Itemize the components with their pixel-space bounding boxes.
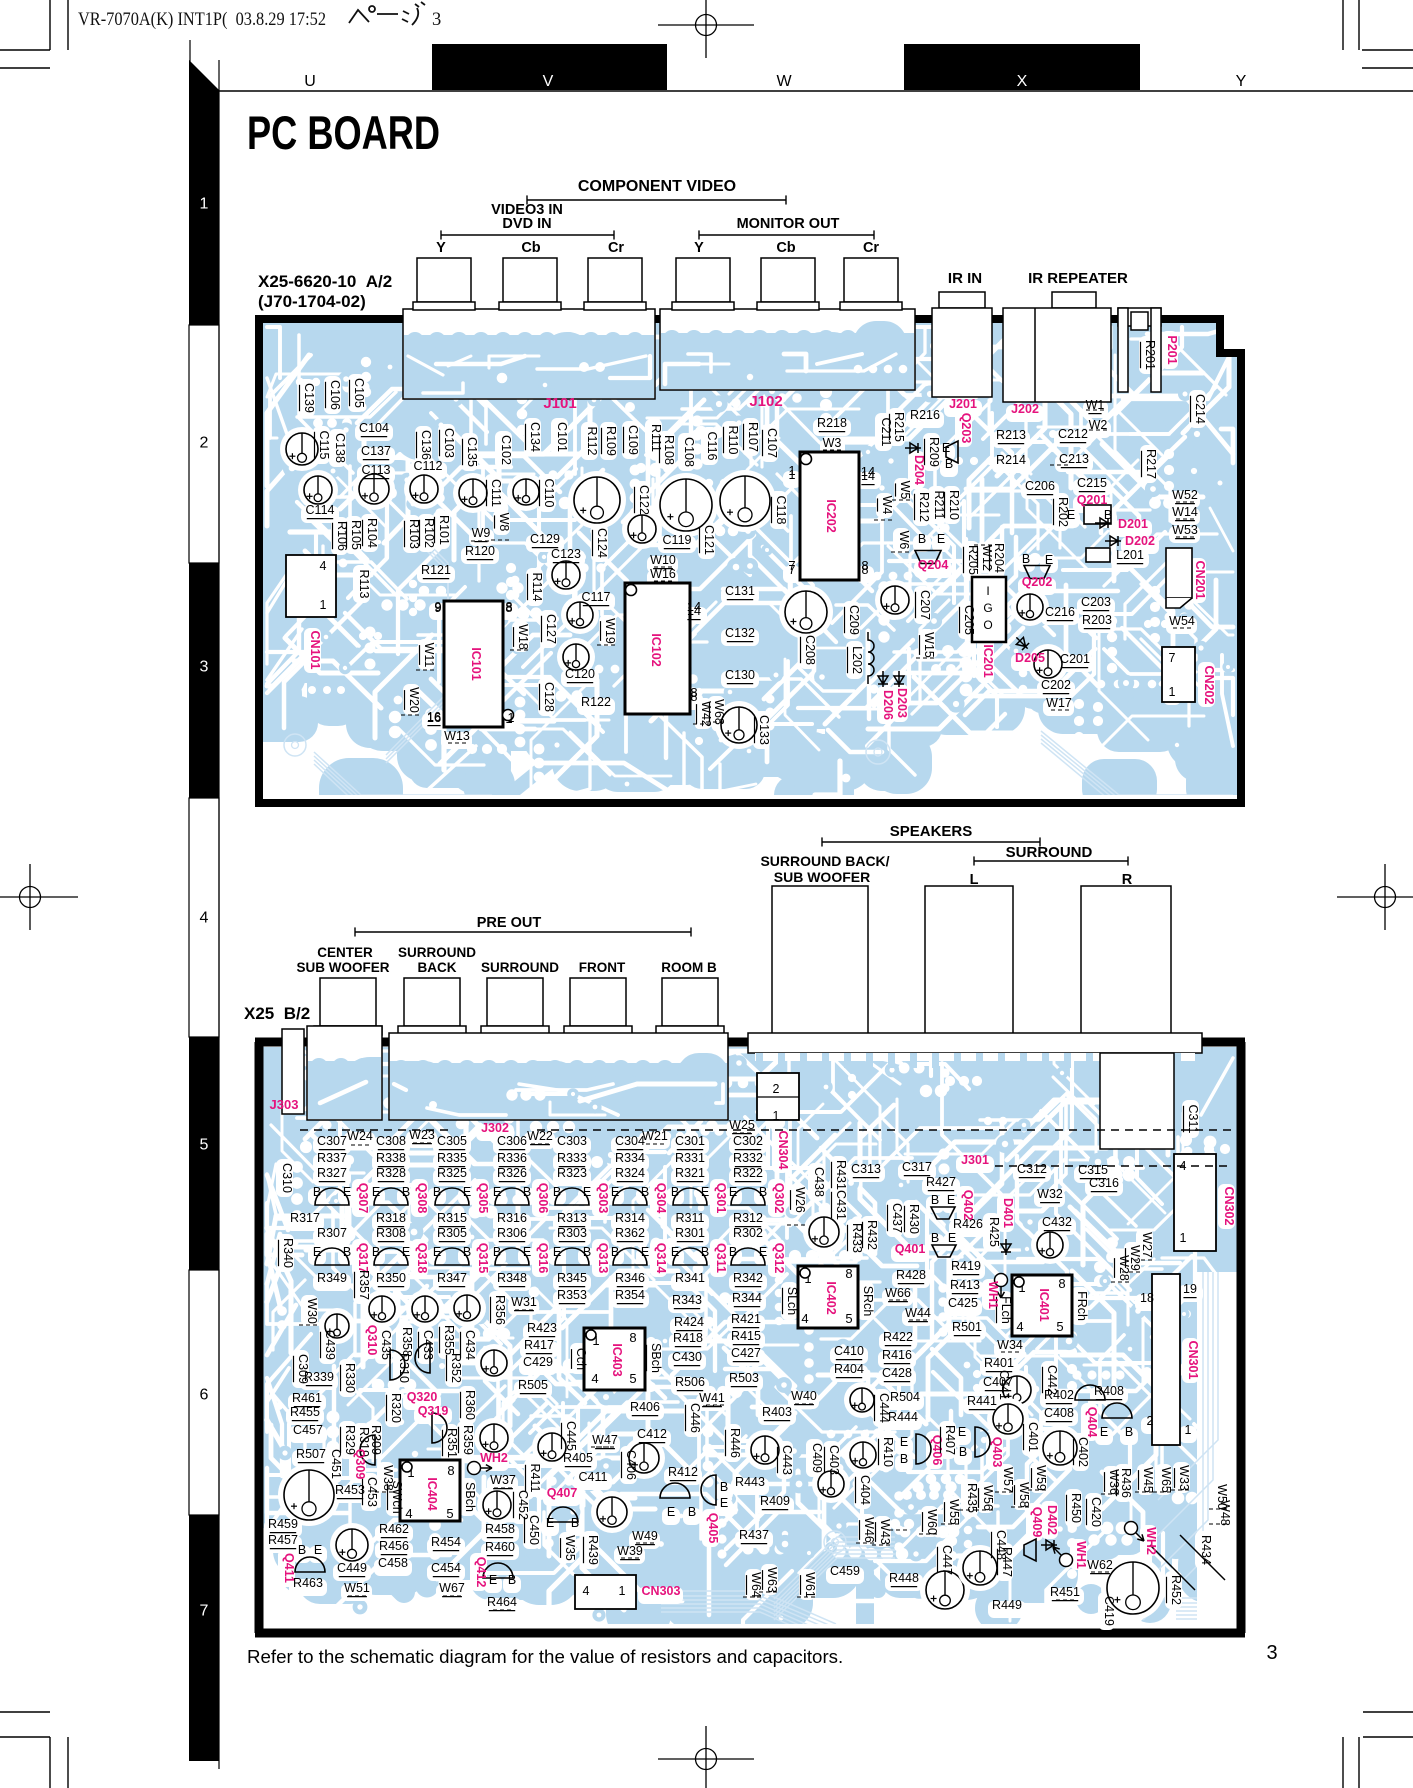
- svg-text:R401: R401: [984, 1356, 1014, 1370]
- svg-text:W16: W16: [650, 567, 676, 581]
- svg-text:Q309: Q309: [353, 1449, 367, 1480]
- svg-text:R411: R411: [528, 1464, 542, 1493]
- svg-text:R501: R501: [952, 1320, 982, 1334]
- svg-text:R434: R434: [1199, 1535, 1213, 1565]
- svg-text:B: B: [671, 1185, 679, 1199]
- svg-text:W45: W45: [1141, 1467, 1155, 1493]
- svg-text:E: E: [942, 441, 950, 455]
- svg-text:R318: R318: [376, 1211, 406, 1225]
- svg-text:C211: C211: [879, 418, 893, 447]
- svg-text:J201: J201: [949, 397, 977, 411]
- svg-text:D401: D401: [1001, 1198, 1015, 1228]
- svg-text:W25: W25: [729, 1118, 755, 1132]
- svg-text:R105: R105: [349, 520, 363, 550]
- svg-text:C454: C454: [431, 1561, 461, 1575]
- svg-text:B: B: [945, 457, 953, 471]
- svg-text:V: V: [543, 73, 554, 90]
- svg-text:R301: R301: [675, 1226, 705, 1240]
- svg-text:E: E: [463, 1185, 471, 1199]
- svg-text:W51: W51: [344, 1581, 370, 1595]
- svg-text:W13: W13: [444, 729, 470, 743]
- svg-text:R313: R313: [557, 1211, 587, 1225]
- svg-text:SBch: SBch: [649, 1343, 663, 1373]
- svg-text:1: 1: [1180, 1231, 1187, 1245]
- svg-text:R456: R456: [379, 1539, 409, 1553]
- svg-text:B: B: [433, 1185, 441, 1199]
- svg-text:14: 14: [861, 469, 875, 483]
- svg-text:SURROUND: SURROUND: [1006, 844, 1093, 861]
- svg-text:R201: R201: [1143, 340, 1157, 370]
- svg-text:B: B: [918, 532, 926, 546]
- svg-text:4: 4: [200, 910, 209, 927]
- svg-text:R435: R435: [965, 1483, 979, 1513]
- svg-text:R403: R403: [762, 1405, 792, 1419]
- svg-text:IC401: IC401: [1037, 1288, 1051, 1321]
- svg-text:R453: R453: [335, 1483, 365, 1497]
- svg-text:W47: W47: [592, 1433, 618, 1447]
- svg-text:W52: W52: [1172, 488, 1198, 502]
- svg-text:C135: C135: [465, 437, 479, 467]
- svg-text:C131: C131: [725, 584, 755, 598]
- svg-text:R101: R101: [437, 515, 451, 545]
- svg-text:Q412: Q412: [474, 1557, 488, 1588]
- svg-text:C308: C308: [376, 1134, 406, 1148]
- svg-text:I: I: [986, 584, 989, 598]
- svg-text:E: E: [372, 1185, 380, 1199]
- svg-text:E: E: [553, 1245, 561, 1259]
- svg-text:R452: R452: [1169, 1575, 1183, 1605]
- svg-text:R433: R433: [850, 1223, 864, 1253]
- svg-text:R214: R214: [996, 453, 1026, 467]
- svg-text:R321: R321: [675, 1166, 705, 1180]
- svg-text:R461: R461: [292, 1391, 322, 1405]
- svg-text:Q304: Q304: [654, 1183, 668, 1214]
- svg-text:C209: C209: [847, 605, 861, 635]
- svg-text:J302: J302: [481, 1121, 509, 1135]
- svg-text:C134: C134: [528, 422, 542, 452]
- svg-text:Q204: Q204: [918, 558, 949, 572]
- svg-text:C437: C437: [890, 1203, 904, 1233]
- svg-text:W44: W44: [905, 1306, 931, 1320]
- svg-text:4: 4: [1016, 1319, 1023, 1334]
- svg-text:IR IN: IR IN: [948, 270, 982, 287]
- svg-text:R459: R459: [268, 1517, 298, 1531]
- svg-text:C317: C317: [902, 1160, 932, 1174]
- svg-text:R106: R106: [335, 521, 349, 551]
- svg-text:W8: W8: [497, 513, 511, 532]
- svg-text:L201: L201: [1116, 548, 1144, 562]
- svg-text:R454: R454: [431, 1535, 461, 1549]
- svg-text:E: E: [343, 1185, 351, 1199]
- svg-text:W12: W12: [980, 545, 994, 571]
- svg-text:C124: C124: [595, 528, 609, 558]
- svg-text:C439: C439: [323, 1330, 337, 1360]
- svg-text:R309: R309: [369, 1425, 383, 1455]
- svg-text:B: B: [688, 1505, 696, 1519]
- svg-text:8: 8: [845, 1266, 852, 1281]
- svg-text:C121: C121: [702, 525, 716, 555]
- svg-text:W32: W32: [1037, 1187, 1063, 1201]
- svg-text:R409: R409: [760, 1494, 790, 1508]
- svg-text:R317: R317: [290, 1211, 320, 1225]
- svg-text:Q318: Q318: [415, 1243, 429, 1274]
- svg-text:E: E: [759, 1245, 767, 1259]
- svg-text:C113: C113: [362, 463, 391, 477]
- svg-text:W23: W23: [409, 1128, 435, 1142]
- svg-text:E: E: [314, 1543, 322, 1557]
- svg-text:Q317: Q317: [356, 1243, 370, 1274]
- svg-text:B: B: [701, 1245, 709, 1259]
- svg-text:3: 3: [200, 659, 209, 676]
- svg-text:Q301: Q301: [714, 1183, 728, 1214]
- svg-text:R505: R505: [518, 1378, 548, 1392]
- svg-text:R327: R327: [317, 1166, 347, 1180]
- svg-text:W40: W40: [791, 1389, 817, 1403]
- svg-text:C132: C132: [725, 626, 755, 640]
- svg-text:Q312: Q312: [772, 1243, 786, 1274]
- svg-text:Q320: Q320: [407, 1390, 438, 1404]
- svg-text:R320: R320: [389, 1393, 403, 1423]
- svg-text:C304: C304: [615, 1134, 645, 1148]
- svg-text:C451: C451: [329, 1449, 343, 1479]
- svg-text:C458: C458: [378, 1556, 408, 1570]
- svg-text:C450: C450: [527, 1515, 541, 1545]
- svg-text:C434: C434: [463, 1330, 477, 1360]
- svg-text:R308: R308: [376, 1226, 406, 1240]
- svg-text:R446: R446: [728, 1428, 742, 1458]
- svg-text:B: B: [343, 1245, 351, 1259]
- svg-text:E: E: [611, 1185, 619, 1199]
- svg-text:R213: R213: [996, 428, 1026, 442]
- svg-text:R349: R349: [317, 1271, 347, 1285]
- svg-text:W: W: [776, 73, 792, 90]
- svg-text:C212: C212: [1058, 427, 1088, 441]
- svg-text:R337: R337: [317, 1151, 347, 1165]
- svg-text:R463: R463: [293, 1576, 323, 1590]
- svg-text:R506: R506: [675, 1375, 705, 1389]
- svg-text:R424: R424: [674, 1315, 704, 1329]
- svg-text:C408: C408: [1044, 1406, 1074, 1420]
- svg-text:16: 16: [427, 710, 441, 724]
- svg-text:W15: W15: [922, 632, 936, 658]
- svg-text:R314: R314: [615, 1211, 645, 1225]
- svg-text:CN301: CN301: [1186, 1341, 1200, 1380]
- svg-text:Cr: Cr: [863, 240, 879, 256]
- svg-text:R428: R428: [896, 1268, 926, 1282]
- svg-text:W60: W60: [925, 1509, 939, 1535]
- svg-text:R355: R355: [442, 1325, 456, 1355]
- svg-text:D402: D402: [1045, 1505, 1059, 1535]
- svg-text:Q315: Q315: [476, 1243, 490, 1274]
- svg-text:B: B: [508, 1573, 516, 1587]
- svg-text:R110: R110: [726, 426, 740, 455]
- svg-text:C138: C138: [333, 433, 347, 463]
- svg-text:PRE OUT: PRE OUT: [477, 915, 542, 931]
- svg-text:W17: W17: [1046, 696, 1072, 710]
- svg-text:C201: C201: [1060, 652, 1090, 666]
- svg-text:R441: R441: [967, 1394, 997, 1408]
- svg-text:1: 1: [320, 598, 327, 612]
- svg-text:E: E: [947, 1193, 955, 1207]
- svg-text:Q202: Q202: [1022, 575, 1053, 589]
- svg-text:E: E: [701, 1185, 709, 1199]
- svg-text:B: B: [553, 1185, 561, 1199]
- svg-text:D205: D205: [1015, 651, 1045, 665]
- svg-text:R303: R303: [557, 1226, 587, 1240]
- svg-text:B: B: [298, 1543, 306, 1557]
- svg-text:R430: R430: [907, 1204, 921, 1234]
- svg-text:C104: C104: [359, 421, 389, 435]
- svg-text:IC202: IC202: [824, 499, 838, 532]
- svg-text:C457: C457: [293, 1423, 323, 1437]
- svg-text:4: 4: [583, 1584, 590, 1598]
- svg-text:5: 5: [1056, 1319, 1063, 1334]
- svg-text:SBch: SBch: [463, 1482, 477, 1512]
- svg-text:B: B: [571, 1516, 579, 1530]
- svg-text:SRch: SRch: [861, 1286, 875, 1317]
- svg-text:C402: C402: [1076, 1437, 1090, 1467]
- svg-text:C412: C412: [637, 1427, 667, 1441]
- svg-text:C401: C401: [1026, 1422, 1040, 1452]
- svg-text:SUB WOOFER: SUB WOOFER: [297, 960, 390, 975]
- svg-text:7: 7: [200, 1603, 209, 1620]
- svg-text:R305: R305: [437, 1226, 467, 1240]
- svg-text:C409: C409: [810, 1443, 824, 1473]
- svg-text:VR-7070A(K) INT1P( 03.8.29 17: VR-7070A(K) INT1P( 03.8.29 17:52: [78, 10, 326, 30]
- svg-text:R340: R340: [281, 1238, 295, 1268]
- svg-text:C425: C425: [948, 1296, 978, 1310]
- svg-text:W64: W64: [749, 1572, 763, 1598]
- svg-text:R306: R306: [497, 1226, 527, 1240]
- svg-text:R312: R312: [733, 1211, 763, 1225]
- svg-text:C303: C303: [557, 1134, 587, 1148]
- svg-text:R108: R108: [662, 435, 676, 465]
- svg-text:J303: J303: [270, 1097, 299, 1112]
- svg-text:O: O: [983, 618, 992, 632]
- svg-text:R325: R325: [437, 1166, 467, 1180]
- svg-text:C307: C307: [317, 1134, 347, 1148]
- svg-text:Q404: Q404: [1085, 1407, 1099, 1438]
- svg-text:C301: C301: [675, 1134, 705, 1148]
- svg-text:E: E: [313, 1245, 321, 1259]
- svg-text:Q311: Q311: [714, 1243, 728, 1273]
- svg-text:R432: R432: [865, 1220, 879, 1250]
- svg-text:COMPONENT VIDEO: COMPONENT VIDEO: [578, 178, 736, 195]
- svg-text:R335: R335: [437, 1151, 467, 1165]
- svg-text:C449: C449: [337, 1561, 367, 1575]
- svg-text:B: B: [729, 1245, 737, 1259]
- svg-text:Q401: Q401: [895, 1242, 926, 1256]
- svg-text:W36: W36: [1107, 1469, 1121, 1495]
- svg-text:9: 9: [435, 600, 442, 614]
- svg-text:L202: L202: [850, 646, 864, 674]
- svg-text:R322: R322: [733, 1166, 763, 1180]
- svg-text:C102: C102: [499, 435, 513, 465]
- svg-text:E: E: [641, 1245, 649, 1259]
- svg-text:X25 B/2: X25 B/2: [244, 1004, 310, 1023]
- svg-text:W14: W14: [1172, 505, 1198, 519]
- svg-text:W28: W28: [1117, 1255, 1131, 1281]
- svg-text:C214: C214: [1193, 394, 1207, 424]
- svg-text:SURROUND: SURROUND: [481, 960, 559, 975]
- svg-text:IC404: IC404: [425, 1477, 439, 1510]
- svg-text:BACK: BACK: [418, 960, 457, 975]
- svg-text:W35: W35: [563, 1535, 577, 1561]
- svg-text:Cr: Cr: [608, 240, 624, 256]
- svg-text:C110: C110: [542, 479, 556, 508]
- svg-text:B: B: [1104, 508, 1112, 522]
- svg-text:Q307: Q307: [356, 1183, 370, 1214]
- svg-text:SLch: SLch: [785, 1287, 799, 1316]
- svg-text:R415: R415: [731, 1329, 761, 1343]
- svg-text:R339: R339: [304, 1370, 334, 1384]
- svg-text:CN304: CN304: [776, 1131, 790, 1170]
- svg-text:Q314: Q314: [654, 1243, 668, 1274]
- svg-text:R353: R353: [557, 1288, 587, 1302]
- svg-text:C431: C431: [834, 1190, 848, 1220]
- svg-text:IR REPEATER: IR REPEATER: [1028, 270, 1128, 287]
- svg-text:C430: C430: [672, 1350, 702, 1364]
- svg-text:E: E: [546, 1516, 554, 1530]
- svg-text:C130: C130: [725, 668, 755, 682]
- svg-text:CN101: CN101: [308, 631, 322, 670]
- svg-text:R408: R408: [1094, 1384, 1124, 1398]
- svg-text:R212: R212: [917, 492, 931, 522]
- svg-text:8: 8: [1058, 1276, 1065, 1291]
- svg-text:G: G: [983, 601, 992, 615]
- svg-text:C136: C136: [419, 430, 433, 460]
- svg-text:ROOM B: ROOM B: [661, 960, 717, 975]
- svg-text:E: E: [937, 532, 945, 546]
- svg-text:C403: C403: [827, 1445, 841, 1475]
- svg-text:W22: W22: [527, 1129, 553, 1143]
- svg-text:8: 8: [447, 1463, 454, 1478]
- svg-text:CN201: CN201: [1193, 561, 1207, 600]
- svg-text:W56: W56: [981, 1485, 995, 1511]
- svg-text:W21: W21: [642, 1129, 668, 1143]
- svg-text:W41: W41: [699, 1391, 725, 1405]
- svg-text:R328: R328: [376, 1166, 406, 1180]
- svg-text:8: 8: [506, 600, 513, 614]
- svg-text:C112: C112: [414, 459, 443, 473]
- svg-text:B: B: [1125, 1425, 1133, 1439]
- svg-text:C305: C305: [437, 1134, 467, 1148]
- svg-text:W55: W55: [947, 1499, 961, 1525]
- svg-text:W46: W46: [862, 1517, 876, 1543]
- svg-text:B: B: [372, 1245, 380, 1259]
- svg-text:C435: C435: [379, 1330, 393, 1360]
- svg-text:P201: P201: [1165, 335, 1179, 364]
- svg-text:R350: R350: [376, 1271, 406, 1285]
- svg-text:R406: R406: [630, 1400, 660, 1414]
- svg-text:C433: C433: [421, 1330, 435, 1360]
- svg-text:R341: R341: [675, 1271, 705, 1285]
- svg-text:R330: R330: [343, 1363, 357, 1393]
- svg-text:R405: R405: [563, 1451, 593, 1465]
- svg-text:2: 2: [1147, 1414, 1154, 1428]
- svg-text:CN303: CN303: [642, 1584, 681, 1598]
- svg-text:B: B: [493, 1245, 501, 1259]
- svg-text:E: E: [671, 1245, 679, 1259]
- svg-text:R423: R423: [527, 1321, 557, 1335]
- svg-text:C207: C207: [918, 590, 932, 620]
- svg-text:Q201: Q201: [1077, 493, 1108, 507]
- svg-text:R103: R103: [407, 519, 421, 549]
- svg-text:Cb: Cb: [776, 240, 795, 256]
- svg-text:PC BOARD: PC BOARD: [247, 106, 440, 159]
- svg-text:R104: R104: [365, 518, 379, 548]
- svg-text:R410: R410: [881, 1437, 895, 1467]
- svg-text:W18: W18: [516, 624, 530, 650]
- svg-text:E: E: [493, 1185, 501, 1199]
- svg-text:R413: R413: [950, 1278, 980, 1292]
- svg-text:Cb: Cb: [521, 240, 540, 256]
- svg-text:WH2: WH2: [480, 1451, 508, 1465]
- svg-text:R425: R425: [987, 1217, 1001, 1247]
- svg-text:3: 3: [1266, 1642, 1277, 1664]
- svg-text:C302: C302: [733, 1134, 763, 1148]
- svg-text:Q306: Q306: [536, 1183, 550, 1214]
- svg-text:Q310: Q310: [365, 1325, 379, 1356]
- svg-text:2: 2: [773, 1082, 780, 1096]
- svg-text:IC101: IC101: [469, 647, 483, 680]
- svg-text:C446: C446: [688, 1403, 702, 1433]
- svg-text:Q316: Q316: [536, 1243, 550, 1274]
- svg-text:Y: Y: [1236, 73, 1247, 90]
- svg-text:Q303: Q303: [596, 1183, 610, 1214]
- svg-text:C114: C114: [306, 503, 335, 517]
- svg-text:W63: W63: [765, 1567, 779, 1593]
- svg-text:E: E: [729, 1185, 737, 1199]
- svg-text:B: B: [523, 1185, 531, 1199]
- svg-text:W37: W37: [490, 1473, 516, 1487]
- svg-text:R357: R357: [357, 1270, 371, 1300]
- svg-text:CENTER: CENTER: [317, 945, 373, 960]
- svg-text:C215: C215: [1077, 476, 1107, 490]
- svg-text:W31: W31: [511, 1295, 537, 1309]
- svg-text:R460: R460: [485, 1540, 515, 1554]
- svg-text:4: 4: [801, 1311, 808, 1326]
- svg-text:R217: R217: [1144, 449, 1158, 479]
- svg-text:R457: R457: [268, 1533, 298, 1547]
- svg-text:B: B: [583, 1245, 591, 1259]
- svg-text:Q405: Q405: [706, 1513, 720, 1544]
- svg-text:C202: C202: [1041, 678, 1071, 692]
- svg-text:Q403: Q403: [990, 1437, 1004, 1468]
- svg-text:B: B: [900, 1452, 908, 1466]
- svg-text:R310: R310: [397, 1353, 411, 1383]
- svg-text:R451: R451: [1050, 1585, 1080, 1599]
- svg-text:W11: W11: [422, 643, 436, 668]
- svg-text:C429: C429: [523, 1355, 553, 1369]
- svg-text:W19: W19: [603, 618, 617, 644]
- svg-text:R458: R458: [485, 1522, 515, 1536]
- svg-text:W66: W66: [885, 1286, 911, 1300]
- svg-text:R307: R307: [317, 1226, 347, 1240]
- svg-text:B: B: [641, 1185, 649, 1199]
- svg-text:R216: R216: [910, 408, 940, 422]
- svg-text:R354: R354: [615, 1288, 645, 1302]
- svg-text:C419: C419: [1102, 1596, 1116, 1626]
- svg-text:C116: C116: [705, 432, 719, 461]
- svg-text:W65: W65: [1159, 1467, 1173, 1493]
- svg-text:C312: C312: [1017, 1162, 1047, 1176]
- svg-text:1: 1: [508, 711, 515, 725]
- svg-text:1: 1: [789, 468, 796, 482]
- svg-text:18: 18: [1140, 1291, 1154, 1305]
- svg-text:C311: C311: [1186, 1105, 1200, 1134]
- svg-text:R507: R507: [296, 1447, 326, 1461]
